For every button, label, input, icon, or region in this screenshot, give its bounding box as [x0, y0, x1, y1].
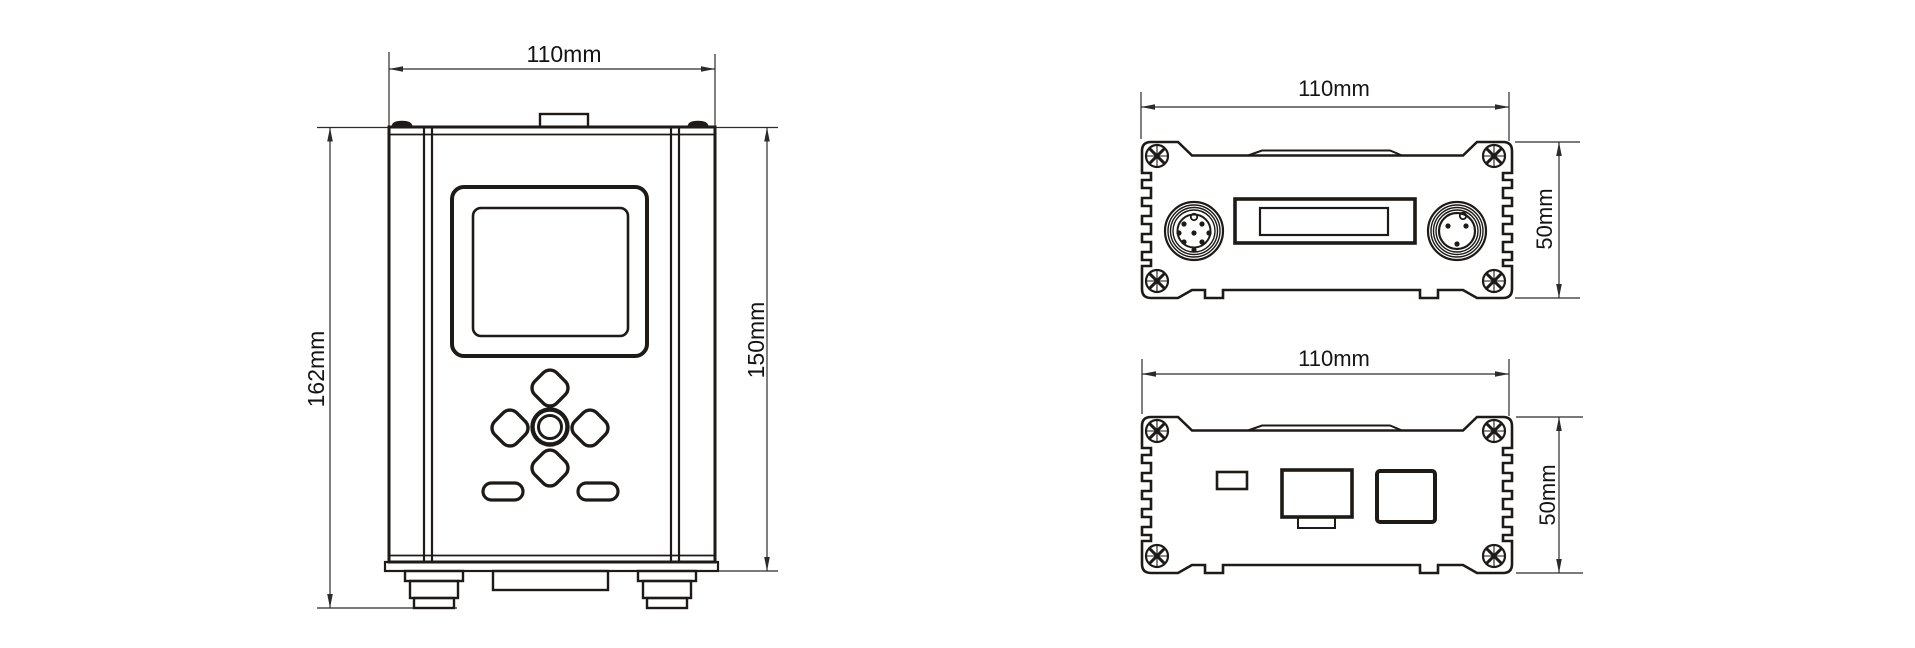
top-panel-width-dim-label: 110mm	[1298, 76, 1370, 101]
bottom-panel-dimensions: 110mm 50mm	[1142, 346, 1583, 573]
right-plug-flange	[638, 571, 696, 581]
front-dpad	[488, 366, 612, 490]
front-bottom-connectors	[405, 571, 696, 608]
bottom-panel-height-dim-label: 50mm	[1535, 464, 1560, 525]
bottom-panel-view: 110mm 50mm	[1142, 346, 1583, 573]
front-overall-height-dim-label: 162mm	[303, 331, 329, 408]
right-plug-body	[643, 581, 691, 598]
side-rail-lines	[424, 128, 679, 561]
right-plug-tip	[647, 598, 687, 608]
top-screw-bump	[688, 121, 709, 127]
screen-bezel	[452, 187, 647, 356]
front-panel-edge-lines	[389, 135, 715, 556]
front-screen	[452, 187, 647, 356]
dpad-right-button	[568, 406, 612, 450]
aviation-connector-3pin	[1428, 202, 1486, 260]
left-plug-flange	[405, 571, 463, 581]
indicator-window	[1217, 472, 1247, 489]
center-bottom-block	[493, 571, 608, 590]
aviation-connector-8pin	[1165, 202, 1223, 260]
left-plug-body	[410, 581, 458, 598]
top-tab	[540, 114, 588, 127]
extension-line	[317, 128, 457, 609]
io-ports	[1217, 470, 1435, 528]
function-button-right	[578, 483, 618, 500]
front-body-height-dim-label: 150mm	[743, 302, 769, 379]
front-body	[385, 114, 718, 571]
technical-drawing-canvas: 110mm 162mm 150mm	[0, 0, 1915, 648]
left-plug-tip	[414, 598, 454, 608]
top-screw-bump	[392, 121, 413, 127]
front-width-dim-label: 110mm	[527, 41, 602, 67]
dpad-down-button	[528, 446, 572, 490]
front-housing-outline	[389, 127, 715, 562]
display-slot-window	[1260, 208, 1388, 235]
top-panel-view: 110mm 50mm	[1141, 76, 1580, 298]
display-slot	[1235, 199, 1415, 243]
dpad-up-button	[528, 366, 572, 410]
square-port	[1377, 471, 1435, 522]
rj45-port	[1282, 470, 1352, 517]
connector-pins	[1445, 223, 1468, 246]
dpad-left-button	[488, 406, 532, 450]
drawing-page: 110mm 162mm 150mm	[0, 0, 1915, 648]
function-button-left	[483, 483, 523, 500]
top-panel-height-dim-label: 50mm	[1532, 188, 1557, 249]
top-panel-dimensions: 110mm 50mm	[1141, 76, 1580, 298]
bottom-panel-width-dim-label: 110mm	[1298, 346, 1370, 371]
front-view: 110mm 162mm 150mm	[303, 41, 778, 608]
dpad-center-button-inner	[539, 416, 562, 439]
screen-display-area	[473, 208, 628, 336]
